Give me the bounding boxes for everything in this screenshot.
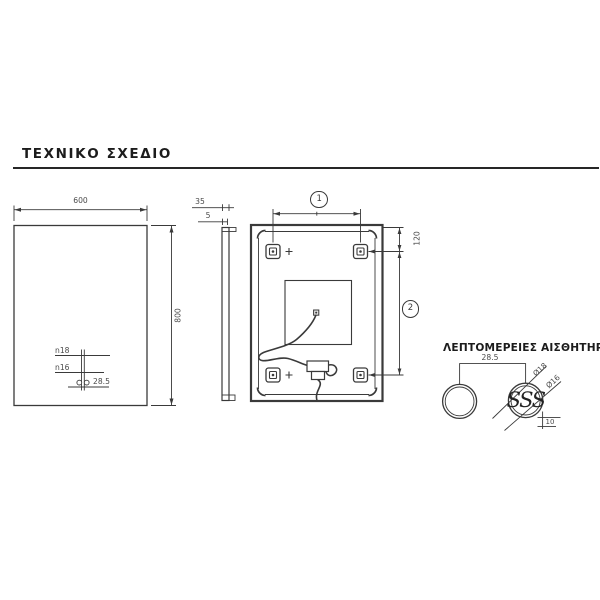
- front-width-label: 600: [14, 196, 147, 205]
- mounting-bracket-bottom-right: [354, 368, 368, 382]
- front-height-label: 800: [173, 298, 182, 332]
- page-title: ΤΕΧΝΙΚΟ ΣΧΕΔΙΟ: [22, 146, 172, 162]
- sensor-hole-dia18-label: n18: [55, 346, 69, 355]
- sensor-wave-symbol: SSS: [504, 385, 548, 415]
- callout-2-badge: 2: [402, 300, 420, 318]
- power-cable: [259, 315, 337, 401]
- sensor-spacing-label: 28.5: [468, 353, 512, 362]
- side-glass-label: 5: [196, 211, 220, 220]
- title-rule: [13, 167, 599, 169]
- details-title: ΛΕΠΤΟΜΕΡΕΙΕΣ ΑΙΣΘΗΤΗΡΩΝ: [443, 342, 600, 354]
- sensor-hole-dia16-label: n16: [55, 363, 69, 372]
- front-view-drawing: [14, 206, 176, 406]
- side-view-drawing: [192, 204, 236, 400]
- back-view-drawing: [251, 209, 404, 401]
- mounting-bracket-bottom-left: [266, 368, 280, 382]
- side-depth-label: 35: [186, 197, 214, 206]
- sensor-depth-label: 10: [546, 418, 555, 426]
- technical-drawing-page: ΤΕΧΝΙΚΟ ΣΧΕΔΙΟ 600 800 n18 n16 28.5 35 5…: [0, 0, 600, 600]
- driver-box: [285, 281, 352, 345]
- cable-plug: [307, 361, 329, 380]
- callout-1-badge: 1: [310, 191, 328, 209]
- drawing-canvas: [0, 0, 600, 600]
- dim-side-offsets: [369, 228, 404, 378]
- bracket-offset-label: 120: [413, 223, 422, 253]
- mounting-bracket-top-right: [354, 245, 368, 259]
- mounting-bracket-top-left: [266, 245, 280, 259]
- sensor-offset-label: 28.5: [93, 377, 110, 386]
